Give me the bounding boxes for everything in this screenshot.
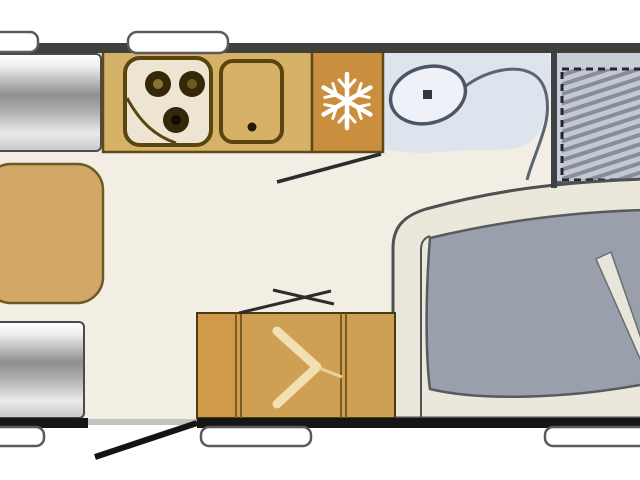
wall-bedroom	[551, 43, 557, 188]
entrance-door-swing	[95, 423, 197, 457]
caravan-floorplan	[0, 0, 640, 480]
door-threshold	[88, 419, 197, 425]
floorplan-canvas	[0, 0, 640, 480]
lounge-cushion	[427, 210, 640, 397]
bench-seat-front	[0, 54, 101, 151]
burner-right-center	[187, 79, 197, 89]
burner-bottom-center	[171, 115, 181, 125]
window-bottom-2	[201, 427, 311, 446]
rear-lounge	[393, 179, 640, 418]
window-top-2	[128, 32, 228, 53]
cabinet-left-segment	[197, 313, 236, 418]
hob-unit	[125, 58, 211, 145]
bunk-bed-hatched	[562, 69, 640, 180]
window-bottom-1	[0, 427, 44, 446]
window-top-1	[0, 32, 38, 52]
burner-left-center	[153, 79, 163, 89]
storage-cabinets	[197, 313, 395, 418]
wall-top	[0, 43, 640, 53]
window-bottom-3	[545, 427, 640, 446]
kitchen-block	[103, 50, 383, 152]
bench-seat-rear	[0, 322, 84, 418]
sink-drain	[248, 123, 257, 132]
dinette-table	[0, 164, 103, 303]
toilet-flush-dot	[423, 90, 432, 99]
